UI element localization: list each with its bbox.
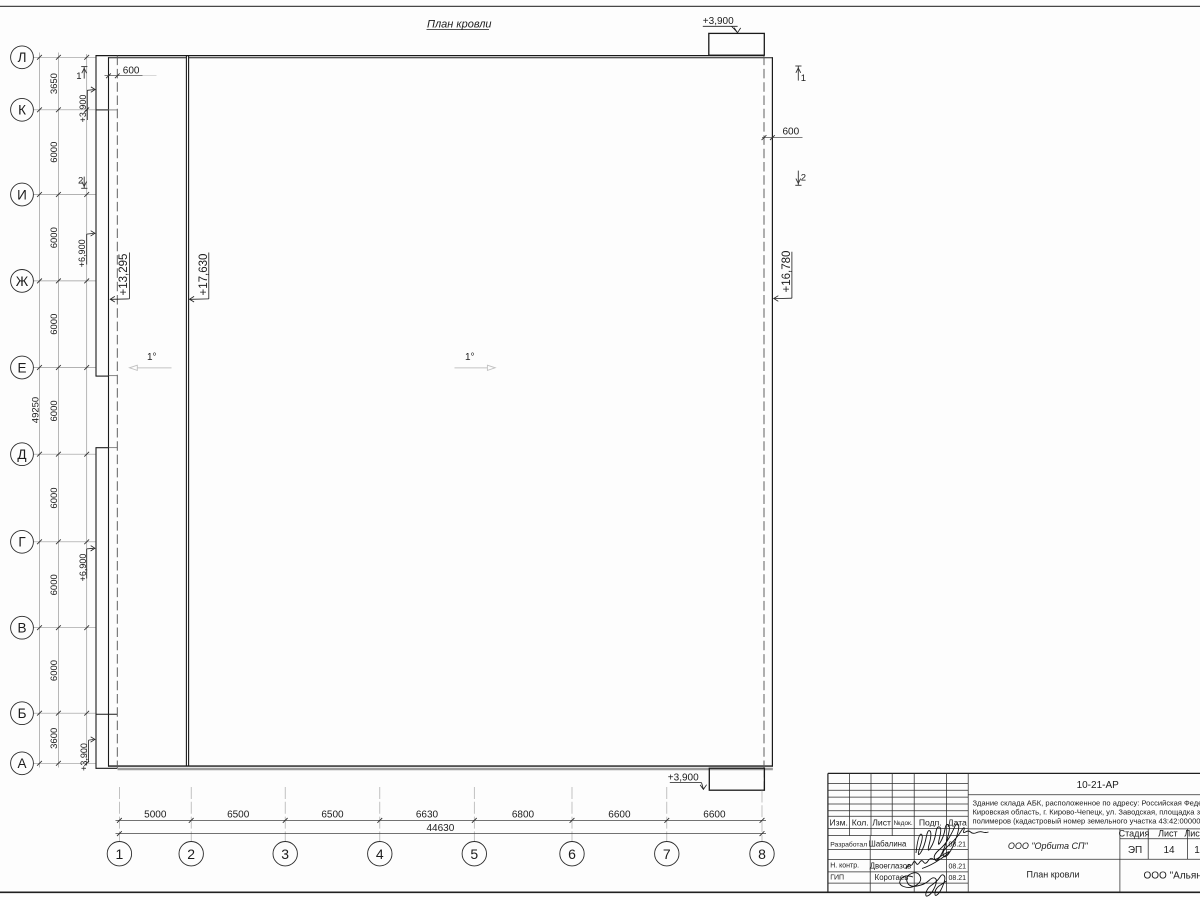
svg-text:Ж: Ж <box>16 274 29 289</box>
svg-text:6600: 6600 <box>703 810 726 821</box>
svg-text:Коротаев: Коротаев <box>875 873 909 882</box>
svg-text:8: 8 <box>758 846 766 862</box>
svg-text:В: В <box>17 621 26 636</box>
svg-text:А: А <box>17 756 26 771</box>
svg-text:Л: Л <box>18 50 27 65</box>
svg-text:План кровли: План кровли <box>427 19 492 31</box>
svg-text:Кировская область, г. Кирово-Ч: Кировская область, г. Кирово-Чепецк, ул.… <box>973 807 1200 816</box>
svg-text:3650: 3650 <box>49 73 60 94</box>
svg-text:6000: 6000 <box>49 574 60 595</box>
svg-text:08.21: 08.21 <box>949 875 967 882</box>
svg-text:+16,780: +16,780 <box>781 251 793 293</box>
svg-text:6500: 6500 <box>227 810 250 821</box>
svg-text:Здание склада АБК, расположенн: Здание склада АБК, расположенное по адре… <box>973 799 1200 808</box>
svg-text:2: 2 <box>78 176 83 187</box>
svg-text:3: 3 <box>281 846 289 862</box>
svg-text:4: 4 <box>376 846 384 862</box>
svg-text:И: И <box>17 187 27 202</box>
svg-text:6000: 6000 <box>49 227 60 248</box>
svg-text:Листов: Листов <box>1184 828 1200 838</box>
svg-text:6000: 6000 <box>49 487 60 508</box>
svg-text:600: 600 <box>783 127 800 138</box>
svg-text:Лист: Лист <box>1158 828 1178 838</box>
svg-text:1: 1 <box>76 71 81 82</box>
svg-text:6500: 6500 <box>321 810 344 821</box>
svg-text:ООО "Альянс-: ООО "Альянс- <box>1144 871 1200 882</box>
svg-text:49250: 49250 <box>30 397 41 423</box>
svg-text:6000: 6000 <box>49 142 60 163</box>
svg-text:2: 2 <box>801 173 806 184</box>
svg-text:6600: 6600 <box>608 810 631 821</box>
svg-text:+6,900: +6,900 <box>77 239 87 267</box>
svg-text:Разработал: Разработал <box>830 840 867 848</box>
svg-text:2: 2 <box>187 846 195 862</box>
svg-text:План кровли: План кровли <box>1027 870 1080 880</box>
svg-text:Кол.: Кол. <box>852 817 869 827</box>
svg-text:1: 1 <box>116 846 124 862</box>
svg-text:№док.: №док. <box>894 820 913 827</box>
svg-text:Изм.: Изм. <box>829 817 847 827</box>
svg-text:6000: 6000 <box>49 400 60 421</box>
svg-text:Подп.: Подп. <box>919 817 942 827</box>
svg-text:+3,900: +3,900 <box>78 95 88 123</box>
svg-text:3600: 3600 <box>49 728 60 749</box>
svg-text:Б: Б <box>18 706 27 721</box>
svg-text:1°: 1° <box>465 352 475 363</box>
svg-text:Стадия: Стадия <box>1119 828 1150 838</box>
svg-text:5: 5 <box>470 846 478 862</box>
svg-text:Дата: Дата <box>948 817 967 827</box>
svg-text:ГИП: ГИП <box>830 875 844 882</box>
svg-text:1: 1 <box>1194 845 1200 856</box>
svg-text:+3,900: +3,900 <box>668 772 699 783</box>
svg-text:10-21-АР: 10-21-АР <box>1077 780 1120 791</box>
svg-text:+13,295: +13,295 <box>118 254 130 296</box>
svg-text:+3,900: +3,900 <box>79 743 89 771</box>
svg-text:1°: 1° <box>147 352 157 363</box>
svg-text:44630: 44630 <box>426 823 454 834</box>
svg-text:Шабалина: Шабалина <box>869 839 907 848</box>
svg-text:К: К <box>18 103 26 118</box>
svg-text:Г: Г <box>18 535 26 550</box>
svg-text:6000: 6000 <box>49 660 60 681</box>
svg-text:Е: Е <box>17 360 26 375</box>
svg-text:Лист: Лист <box>872 817 891 827</box>
svg-text:+17,630: +17,630 <box>198 254 210 296</box>
svg-text:6800: 6800 <box>512 810 535 821</box>
svg-text:6000: 6000 <box>49 314 60 335</box>
svg-text:5000: 5000 <box>144 810 167 821</box>
svg-text:Д: Д <box>17 447 26 462</box>
svg-text:7: 7 <box>663 846 671 862</box>
svg-text:ООО "Орбита СП": ООО "Орбита СП" <box>1008 841 1089 851</box>
svg-text:6: 6 <box>568 846 576 862</box>
svg-text:600: 600 <box>123 65 140 76</box>
svg-text:6630: 6630 <box>416 810 439 821</box>
svg-text:1: 1 <box>801 73 806 84</box>
svg-text:+3,900: +3,900 <box>703 16 734 27</box>
svg-text:Двоеглазов: Двоеглазов <box>870 862 911 871</box>
svg-text:Н. контр.: Н. контр. <box>830 862 859 869</box>
svg-text:ЭП: ЭП <box>1128 845 1142 856</box>
svg-text:полимеров (кадастровый номер з: полимеров (кадастровый номер земельного … <box>973 817 1200 826</box>
svg-text:14: 14 <box>1163 845 1175 856</box>
svg-text:08.21: 08.21 <box>949 863 967 870</box>
